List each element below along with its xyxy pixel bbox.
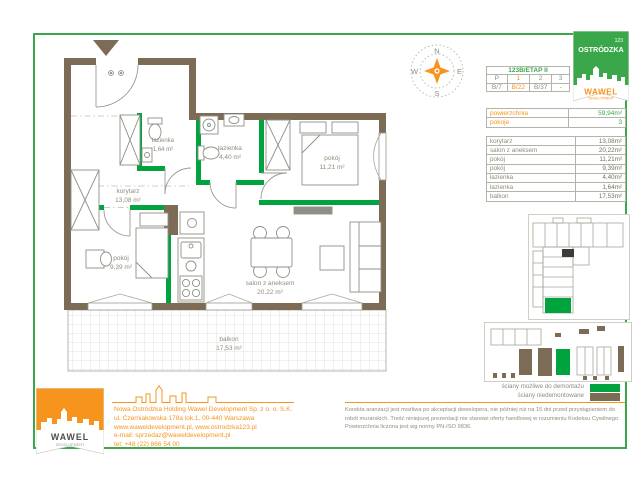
unit-cell: - [552,83,570,91]
table-row: balkon17,53m² [487,192,626,201]
compass-south: S [434,89,439,98]
compass-west: W [411,67,419,76]
company-name: Nowa Ostródzka Holding Wawel Development… [114,406,292,415]
company-logo: WAWEL DEVELOPMENT [36,388,104,456]
sofa-icon [350,222,381,292]
company-street: ul. Czerniakowska 178a lok.1, 00-440 War… [114,415,292,424]
dining-table-icon [251,227,292,278]
floor-cell: 2 [529,75,551,83]
label-room-large-area: 11,21 m² [319,164,345,171]
badge-brand: WAWEL [584,88,617,97]
floorplan-flyer: { "colors":{"wall_brown":"#7C6B55","wall… [0,0,640,480]
room-name: korytarz [487,137,576,146]
disclaimer-line: Korekta aranżacji jest możliwa po akcept… [345,406,631,415]
floor-cell: 3 [552,75,570,83]
rooms-label: pokoje [487,118,569,127]
rooms-value: 3 [569,118,626,127]
project-badge: 123 OSTRÓDZKA WAWEL DEVELOPMENT [573,31,629,103]
building-key-plan [528,214,630,320]
label-salon-area: 20,22 m² [257,289,283,296]
label-balcony: balkon [219,336,239,343]
legend-fixed-swatch [590,393,620,401]
peephole-icon [109,71,124,76]
compass-rose: N E S W [411,45,463,98]
disclaimer-line: robót murarskich. Treść niniejszej preze… [345,415,631,424]
room-area: 13,08m² [576,137,626,146]
skyline-divider-icon [112,385,294,404]
legend-fixed-label: ściany niedemontowane [420,391,584,400]
rooms-table: korytarz13,08m² salon z aneksem20,22m² p… [486,136,626,202]
label-room-small: pokój [113,255,129,262]
room-area: 9,39m² [576,164,626,173]
site-plan [484,322,632,382]
floor-cell: P [487,75,508,83]
room-name: łazienka [487,183,576,192]
room-name: salon z aneksem [487,146,576,155]
compass-east: E [457,67,462,76]
unit-cell: B/37 [529,83,551,91]
label-salon: salon z aneksem [246,280,295,287]
label-bath-small-area: 1,64 m² [153,147,173,153]
table-row: korytarz13,08m² [487,137,626,146]
logo-brand-sub: DEVELOPMENT [56,443,85,447]
table-row: łazienka4,40m² [487,173,626,182]
room-name: pokój [487,164,576,173]
badge-number: 123 [615,38,624,44]
table-row: pokój9,39m² [487,164,626,173]
unit-table: 123B/ETAP II P 1 2 3 B/7 B/22 B/37 - [486,66,570,92]
legal-disclaimer: Korekta aranżacji jest możliwa po akcept… [345,406,631,432]
room-name: pokój [487,155,576,164]
badge-brand-sub: DEVELOPMENT [588,97,614,101]
coffee-table-icon [320,246,344,270]
unit-cell: B/7 [487,83,508,91]
unit-table-title: 123B/ETAP II [487,67,570,75]
room-name: balkon [487,192,576,201]
room-area: 20,22m² [576,146,626,155]
company-websites: www.waweldevelopment.pl, www.ostrodzka12… [114,424,292,433]
room-area: 1,64m² [576,183,626,192]
table-row: łazienka1,64m² [487,183,626,192]
area-value: 59,94m² [569,109,626,118]
unit-cell-current: B/22 [507,83,529,91]
washing-machine-icon [200,116,218,134]
stairwell-marker [562,249,574,257]
label-room-small-area: 9,39 m² [110,264,133,271]
compass-north: N [434,47,439,56]
double-bed-icon [300,122,358,185]
legend-demountable-label: ściany możliwe do demontażu [420,382,584,391]
disclaimer-divider [345,402,625,403]
room-area: 17,53m² [576,192,626,201]
area-label: powierzchnia [487,109,569,118]
company-address: Nowa Ostródzka Holding Wawel Development… [114,406,292,450]
floor-cell-current: 1 [507,75,529,83]
table-row: salon z aneksem20,22m² [487,146,626,155]
badge-project-name: OSTRÓDZKA [578,45,624,54]
label-balcony-area: 17,53 m² [216,345,242,352]
logo-brand: WAWEL [51,432,89,442]
company-phone: tel: +48 (22) 866 54 00 [114,441,292,450]
label-bath-small: łazienka [152,138,175,144]
table-row: pokój11,21m² [487,155,626,164]
legend-demountable-swatch [590,384,620,392]
room-name: łazienka [487,173,576,182]
summary-table: powierzchnia 59,94m² pokoje 3 [486,108,626,128]
label-room-large: pokój [324,155,340,162]
entry-arrow-icon [93,40,119,56]
label-bath-large-area: 4,40 m² [219,154,242,161]
label-bath-large: łazienka [218,145,242,152]
label-korytarz: korytarz [116,188,139,195]
kitchen-icons [178,212,204,302]
highlighted-unit [545,298,571,313]
room-area: 11,21m² [576,155,626,164]
highlighted-building [556,349,570,375]
label-korytarz-area: 13,08 m² [115,197,141,204]
disclaimer-line: Powierzchnia liczona jest wg normy PN-IS… [345,423,631,432]
room-area: 4,40m² [576,173,626,182]
wall-legend: ściany możliwe do demontażu ściany niede… [420,382,584,400]
company-email: e-mail: sprzedaz@waweldevelopment.pl [114,432,292,441]
tv-board-icon [294,207,332,214]
